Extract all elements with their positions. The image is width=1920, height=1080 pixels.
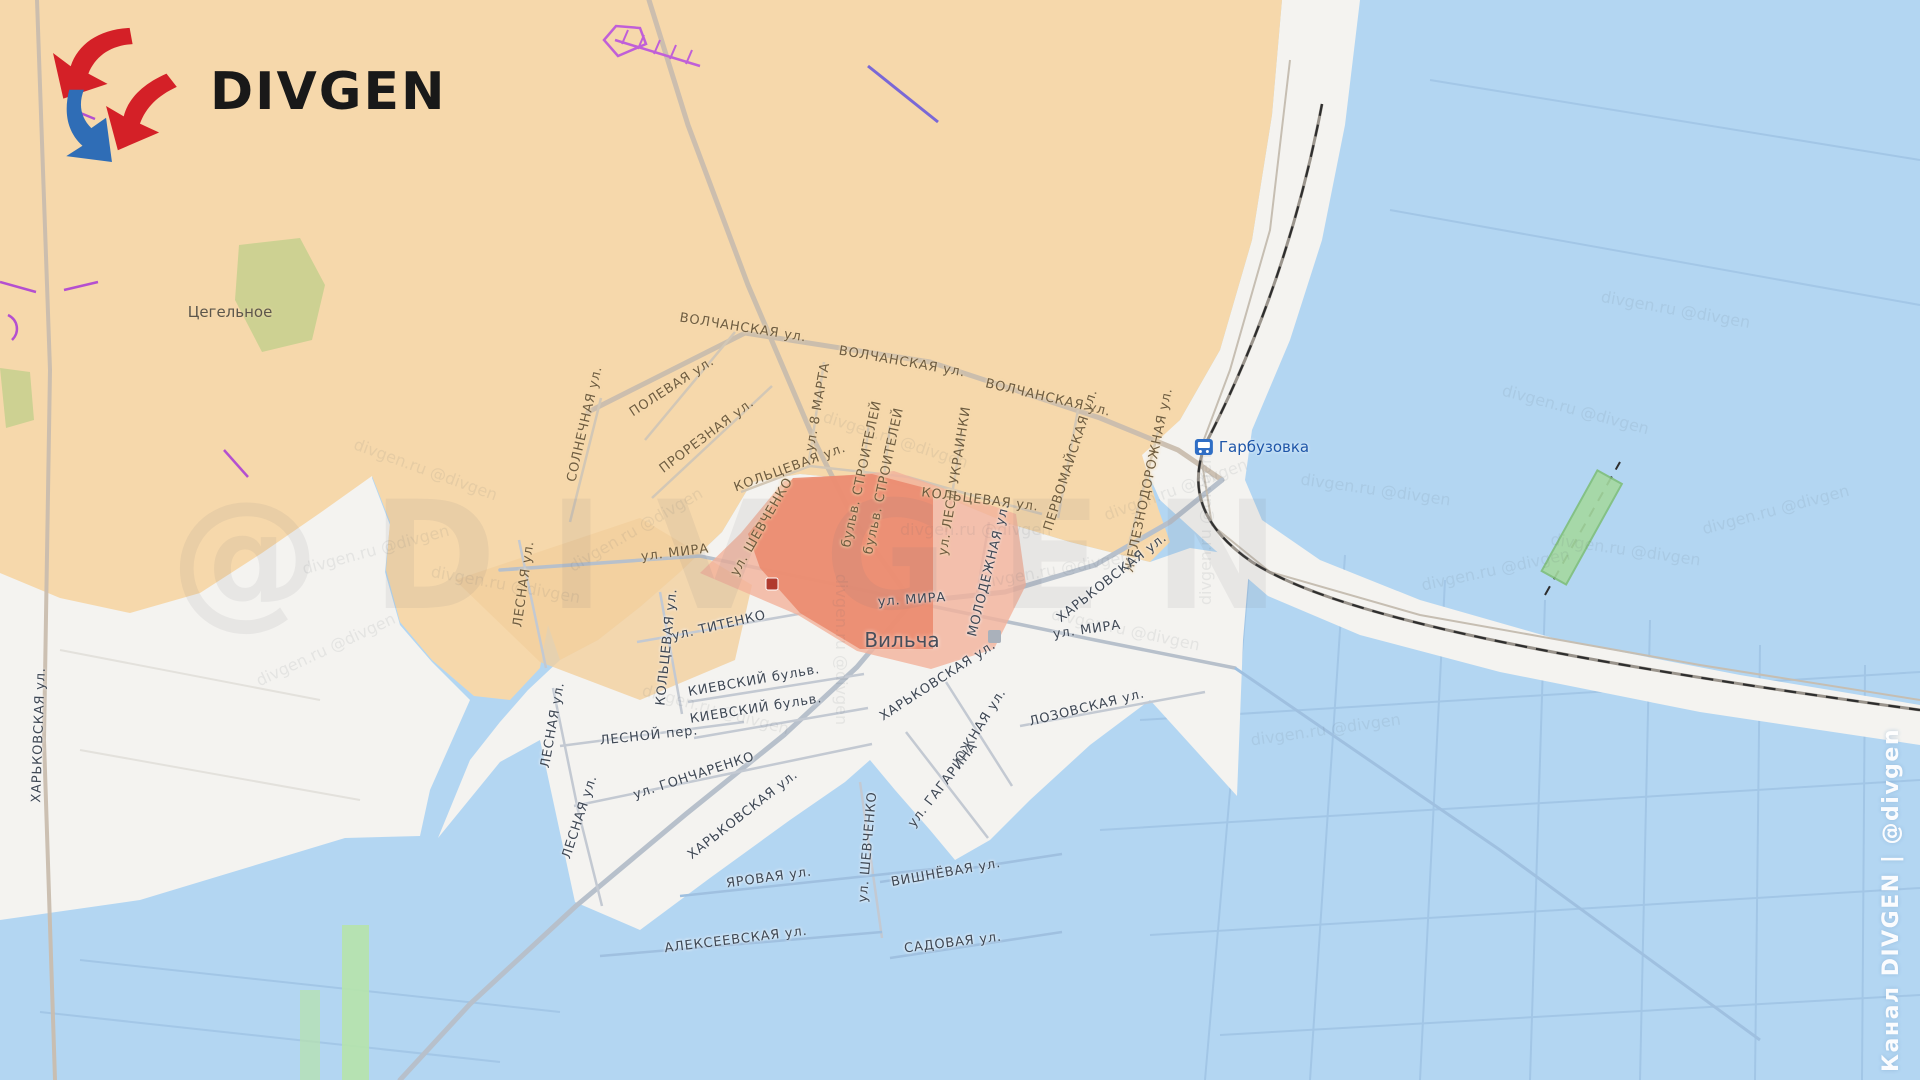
- green-strip: [300, 990, 320, 1080]
- map-canvas: [0, 0, 1920, 1080]
- logo-mark: [34, 22, 184, 162]
- channel-watermark: Канал DIVGEN | @divgen: [1879, 728, 1904, 1072]
- map-root: @DIVGEN divgen.ru @divgendivgen.ru @divg…: [0, 0, 1920, 1080]
- logo-arrow-blue: [66, 90, 112, 162]
- logo: DIVGEN: [34, 22, 446, 162]
- logo-arrow-red-top: [53, 28, 133, 99]
- poi-icon-gray: [988, 630, 1001, 643]
- poi-icon-red: [766, 578, 778, 590]
- green-strip: [342, 925, 369, 1080]
- logo-arrow-red-mid: [106, 74, 177, 151]
- logo-text: DIVGEN: [210, 62, 446, 122]
